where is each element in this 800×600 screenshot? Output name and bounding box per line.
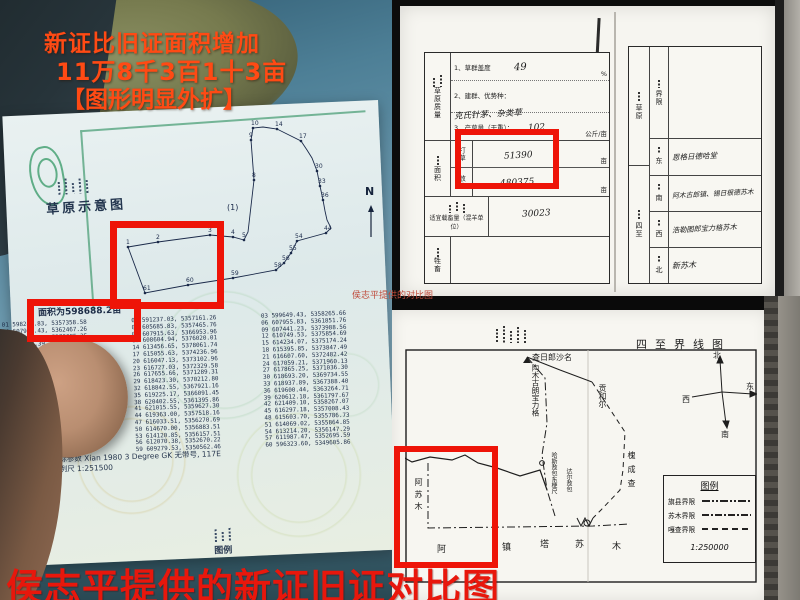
four-boundaries-table: 草原 四至 界限 东 恩格日德哈堂 南 阿木 <box>628 46 762 284</box>
boundary-header-row: 界限 <box>650 47 761 139</box>
vertex-number: 55 <box>289 245 297 252</box>
coverage-unit: % <box>601 70 607 78</box>
west-row: 西 浩勒图郎宝力格苏木 <box>650 212 761 248</box>
gacha-boundary-pattern <box>702 528 751 530</box>
vertex-dot <box>290 252 293 255</box>
area-section-label: 面积 <box>433 166 443 182</box>
vertex-dot <box>319 185 322 188</box>
handwritten-place: 查日郎沙名 <box>532 352 572 363</box>
vertex-number: 33 <box>318 178 326 185</box>
coordinate-column-2: 02 591237.03, 5357161.26 05 605685.83, 5… <box>131 314 263 460</box>
capacity-value: 30023 <box>522 208 551 219</box>
legend-item-label: 旗县界限 <box>668 496 702 506</box>
bottom-caption: 侯志平提供的新证旧证对比图 <box>6 557 500 600</box>
north-label: 北 <box>656 265 663 275</box>
handwritten-place: 哈斯敖包东梗尺 <box>549 452 558 494</box>
handwritten-place: 陶木古朗宝力格 <box>530 364 541 417</box>
handwritten-place: 贡和尔 <box>597 384 608 408</box>
legend-item: 旗县界限 <box>668 496 751 506</box>
livestock-row-empty <box>451 237 609 283</box>
legend-scale: 1:250000 <box>668 543 751 552</box>
compass-east: 东 <box>746 381 754 391</box>
species-row: 2、建群、优势种： 克氏针茅、杂类草 <box>451 81 609 113</box>
watermark-text: 侯志平提供的对比图 <box>352 288 433 301</box>
mongolian-script <box>214 528 232 543</box>
vertex-number: 17 <box>299 133 307 140</box>
handwritten-place: 塔 <box>540 537 549 550</box>
vertex-number: 56 <box>282 255 290 262</box>
north-label: N <box>365 185 374 198</box>
vertex-number: 8 <box>252 172 256 179</box>
parcel-number-label: (1) <box>227 203 238 212</box>
scan-edge <box>784 0 800 300</box>
vertex-number: 14 <box>275 121 283 128</box>
vertex-dot <box>322 199 325 202</box>
legend-item-label: 嘎查界限 <box>668 524 702 534</box>
grassland-label: 草原 <box>634 104 644 120</box>
boundary-header-label: 界限 <box>654 90 664 106</box>
mongolian-script <box>496 326 526 343</box>
east-row: 东 恩格日德哈堂 <box>650 139 761 175</box>
vertex-dot <box>243 239 246 242</box>
vertex-dot <box>283 262 286 265</box>
vertex-number: 10 <box>251 120 259 127</box>
vertex-dot <box>275 269 278 272</box>
highlight-box-old-area <box>455 129 559 189</box>
mongolian-script <box>57 177 88 195</box>
four-boundaries-label: 四至 <box>634 222 644 238</box>
map-legend: 图例 旗县界限 苏木界限 嘎查界限 1:250000 <box>663 475 756 563</box>
quality-section-label: 草原质量 <box>433 87 443 119</box>
banner-boundary-pattern <box>702 500 751 502</box>
highlight-box-boundary <box>394 446 498 568</box>
vertex-dot <box>250 139 253 142</box>
sumu-boundary-pattern <box>702 514 751 516</box>
section-quality: 草原质量 <box>425 53 451 140</box>
certificate-comparison-collage: 草原示意图 1234589101417303336445455565859606… <box>0 0 800 600</box>
vertex-dot <box>253 179 256 182</box>
legend-item: 苏木界限 <box>668 510 751 520</box>
highlight-box-area <box>27 299 141 342</box>
vertex-number: 30 <box>315 163 323 170</box>
vertex-dot <box>276 128 279 131</box>
livestock-labels: 牲畜 <box>425 237 451 283</box>
north-arrowhead-icon <box>368 205 374 212</box>
compass-south: 南 <box>721 429 729 439</box>
coverage-row: 1、草群盖度 49 % <box>451 53 609 81</box>
section-area: 面积 <box>425 141 451 196</box>
grazing-unit: 亩 <box>601 184 608 194</box>
capacity-label: 适宜载畜量（混羊单位） <box>426 213 487 231</box>
old-certificate-form-scan: 草原质量 1、草群盖度 49 % 2、建群、优势种： 克氏针茅、杂类草 3、产草… <box>392 0 800 300</box>
south-row: 南 阿木古郎镇、锡日根德苏木 <box>650 176 761 212</box>
highlight-box-map <box>110 221 224 309</box>
vertex-number: 58 <box>274 262 282 269</box>
annotation-line-3: 【图形明显外扩】 <box>62 80 246 114</box>
livestock-label: 牲畜 <box>433 257 443 273</box>
scan-edge <box>775 0 784 300</box>
legend-item: 嘎查界限 <box>668 524 751 534</box>
vertex-number: 5 <box>242 232 246 239</box>
vertex-dot <box>232 277 235 280</box>
west-value: 浩勒图郎宝力格苏木 <box>672 223 737 236</box>
legend-item-label: 苏木界限 <box>668 510 702 520</box>
coverage-label: 1、草群盖度 <box>454 64 491 72</box>
vertex-dot <box>232 236 235 239</box>
handwritten-place: 达尔敖包 <box>564 468 573 492</box>
south-label: 南 <box>656 193 663 203</box>
oboo-marker <box>540 461 545 466</box>
vertex-dot <box>252 127 255 130</box>
vertex-number: 44 <box>324 225 332 232</box>
handwritten-place: 镇 <box>502 540 511 553</box>
haying-unit: 亩 <box>601 155 608 165</box>
capacity-row: 30023 <box>489 197 609 236</box>
vertex-number: 9 <box>249 132 253 139</box>
east-value: 恩格日德哈堂 <box>672 150 718 163</box>
yield-unit: 公斤/亩 <box>585 128 607 138</box>
capacity-labels: 适宜载畜量（混羊单位） <box>425 197 489 236</box>
handwritten-place: 木 <box>612 539 621 552</box>
new-certificate-photo: 草原示意图 1234589101417303336445455565859606… <box>0 0 392 600</box>
doc-legend: 图例 <box>214 528 233 557</box>
handwritten-place: 苏 <box>575 537 584 550</box>
handwritten-place: 槐成查 <box>626 451 637 493</box>
boundary-outer-labels: 草原 四至 <box>629 47 650 283</box>
coverage-value: 49 <box>513 62 526 74</box>
south-value: 阿木古郎镇、锡日根德苏木 <box>672 186 754 200</box>
north-value: 新苏木 <box>672 259 697 271</box>
vertex-number: 59 <box>231 270 239 277</box>
vertex-dot <box>296 240 299 243</box>
compass-west: 西 <box>682 395 690 404</box>
west-label: 西 <box>656 229 663 239</box>
scan-edge <box>778 296 800 600</box>
vertex-dot <box>300 140 303 143</box>
vertex-number: 54 <box>295 233 303 240</box>
vertex-dot <box>316 170 319 173</box>
vertex-number: 4 <box>231 229 235 236</box>
boundary-header-empty <box>669 47 761 138</box>
compass-north: 北 <box>713 351 721 360</box>
east-label: 东 <box>656 156 663 166</box>
legend-title: 图例 <box>668 479 751 492</box>
legend-label: 图例 <box>214 543 232 557</box>
compass-icon <box>692 356 757 428</box>
vertex-number: 36 <box>321 192 329 199</box>
vertex-dot <box>325 232 328 235</box>
coordinate-column-3: 03 599649.43, 5358265.66 06 607955.83, 5… <box>261 309 392 455</box>
scan-edge <box>764 296 778 600</box>
species-label: 2、建群、优势种： <box>454 92 510 100</box>
book-spine <box>614 12 616 292</box>
north-row: 北 新苏木 <box>650 248 761 283</box>
